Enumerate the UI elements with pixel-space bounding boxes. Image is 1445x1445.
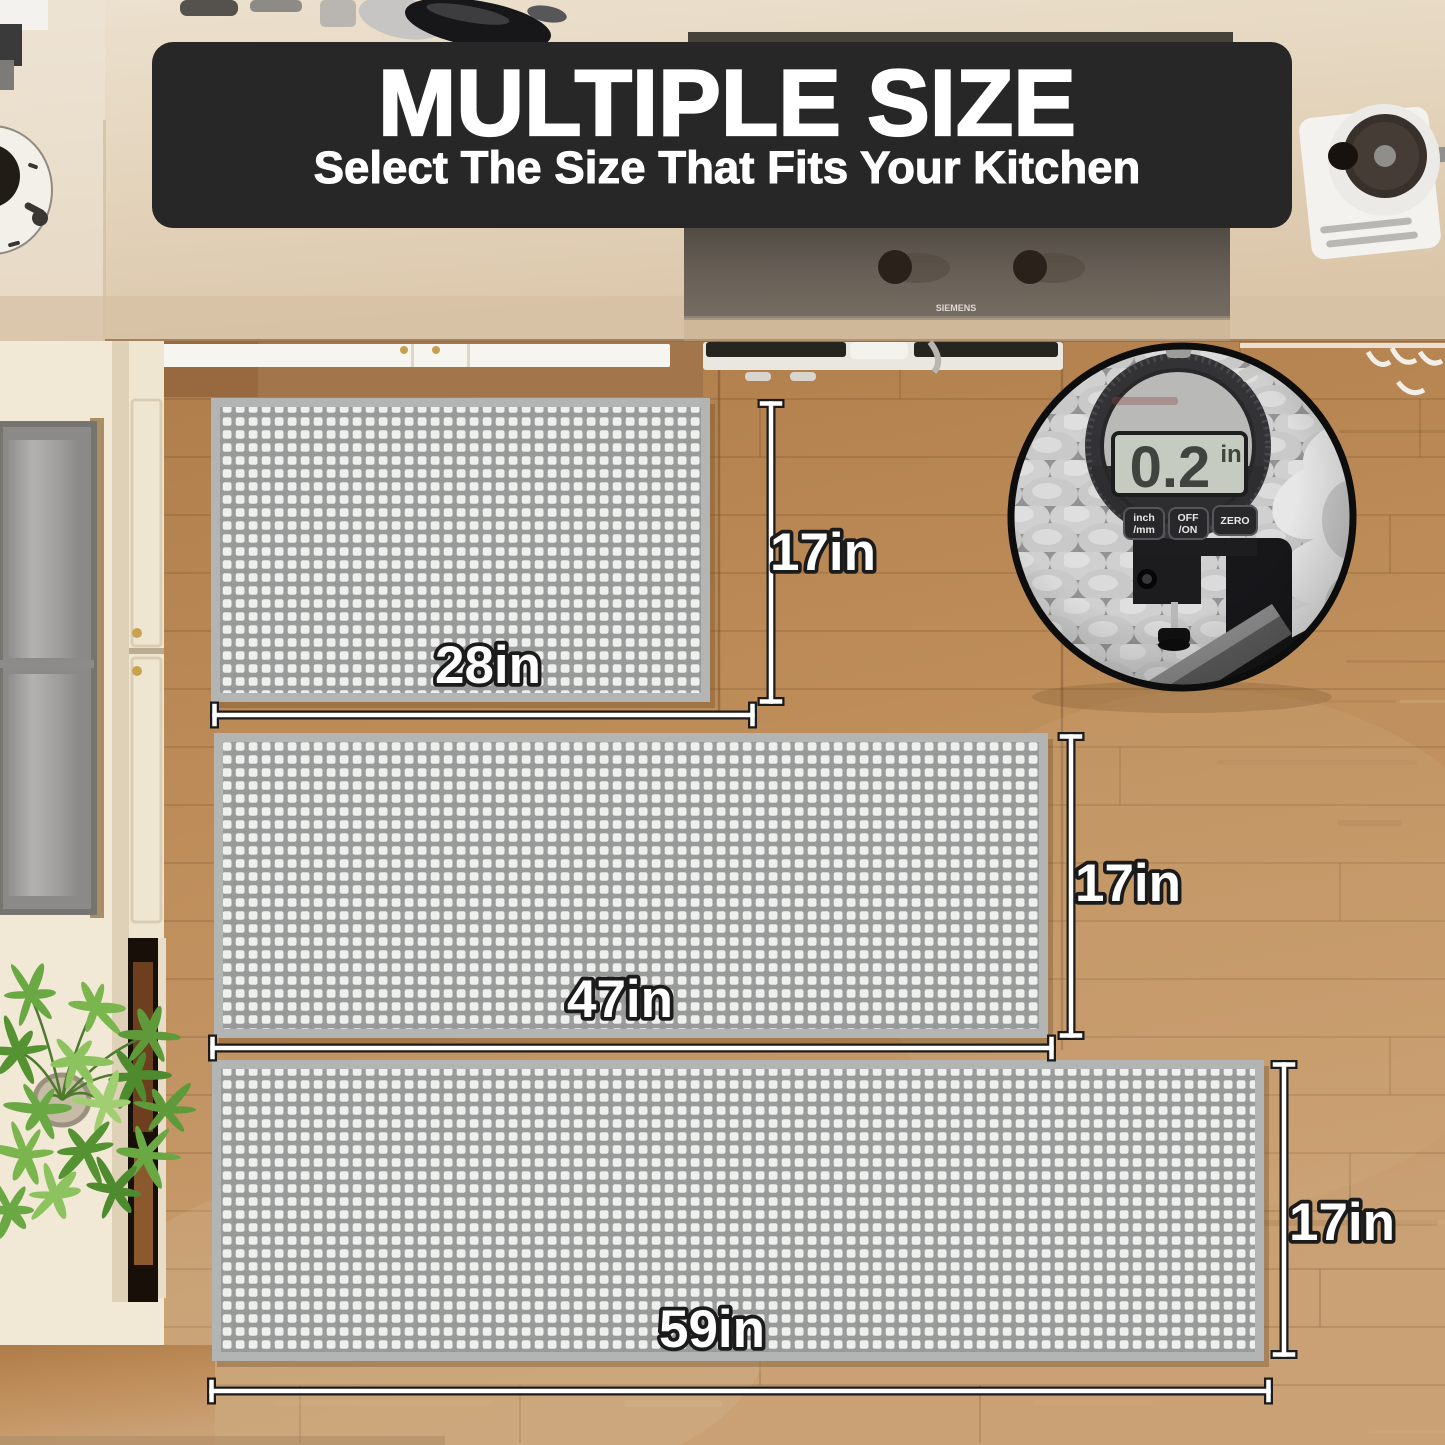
svg-text:17in: 17in <box>770 523 876 582</box>
svg-text:28in: 28in <box>435 636 541 695</box>
svg-text:SIEMENS: SIEMENS <box>936 303 977 313</box>
svg-text:17in: 17in <box>1289 1193 1395 1252</box>
svg-text:Select The Size That Fits Your: Select The Size That Fits Your Kitchen <box>314 142 1141 193</box>
svg-text:MULTIPLE SIZE: MULTIPLE SIZE <box>378 50 1076 155</box>
svg-text:17in: 17in <box>1075 854 1181 913</box>
svg-text:59in: 59in <box>659 1300 765 1359</box>
svg-text:47in: 47in <box>567 970 673 1029</box>
